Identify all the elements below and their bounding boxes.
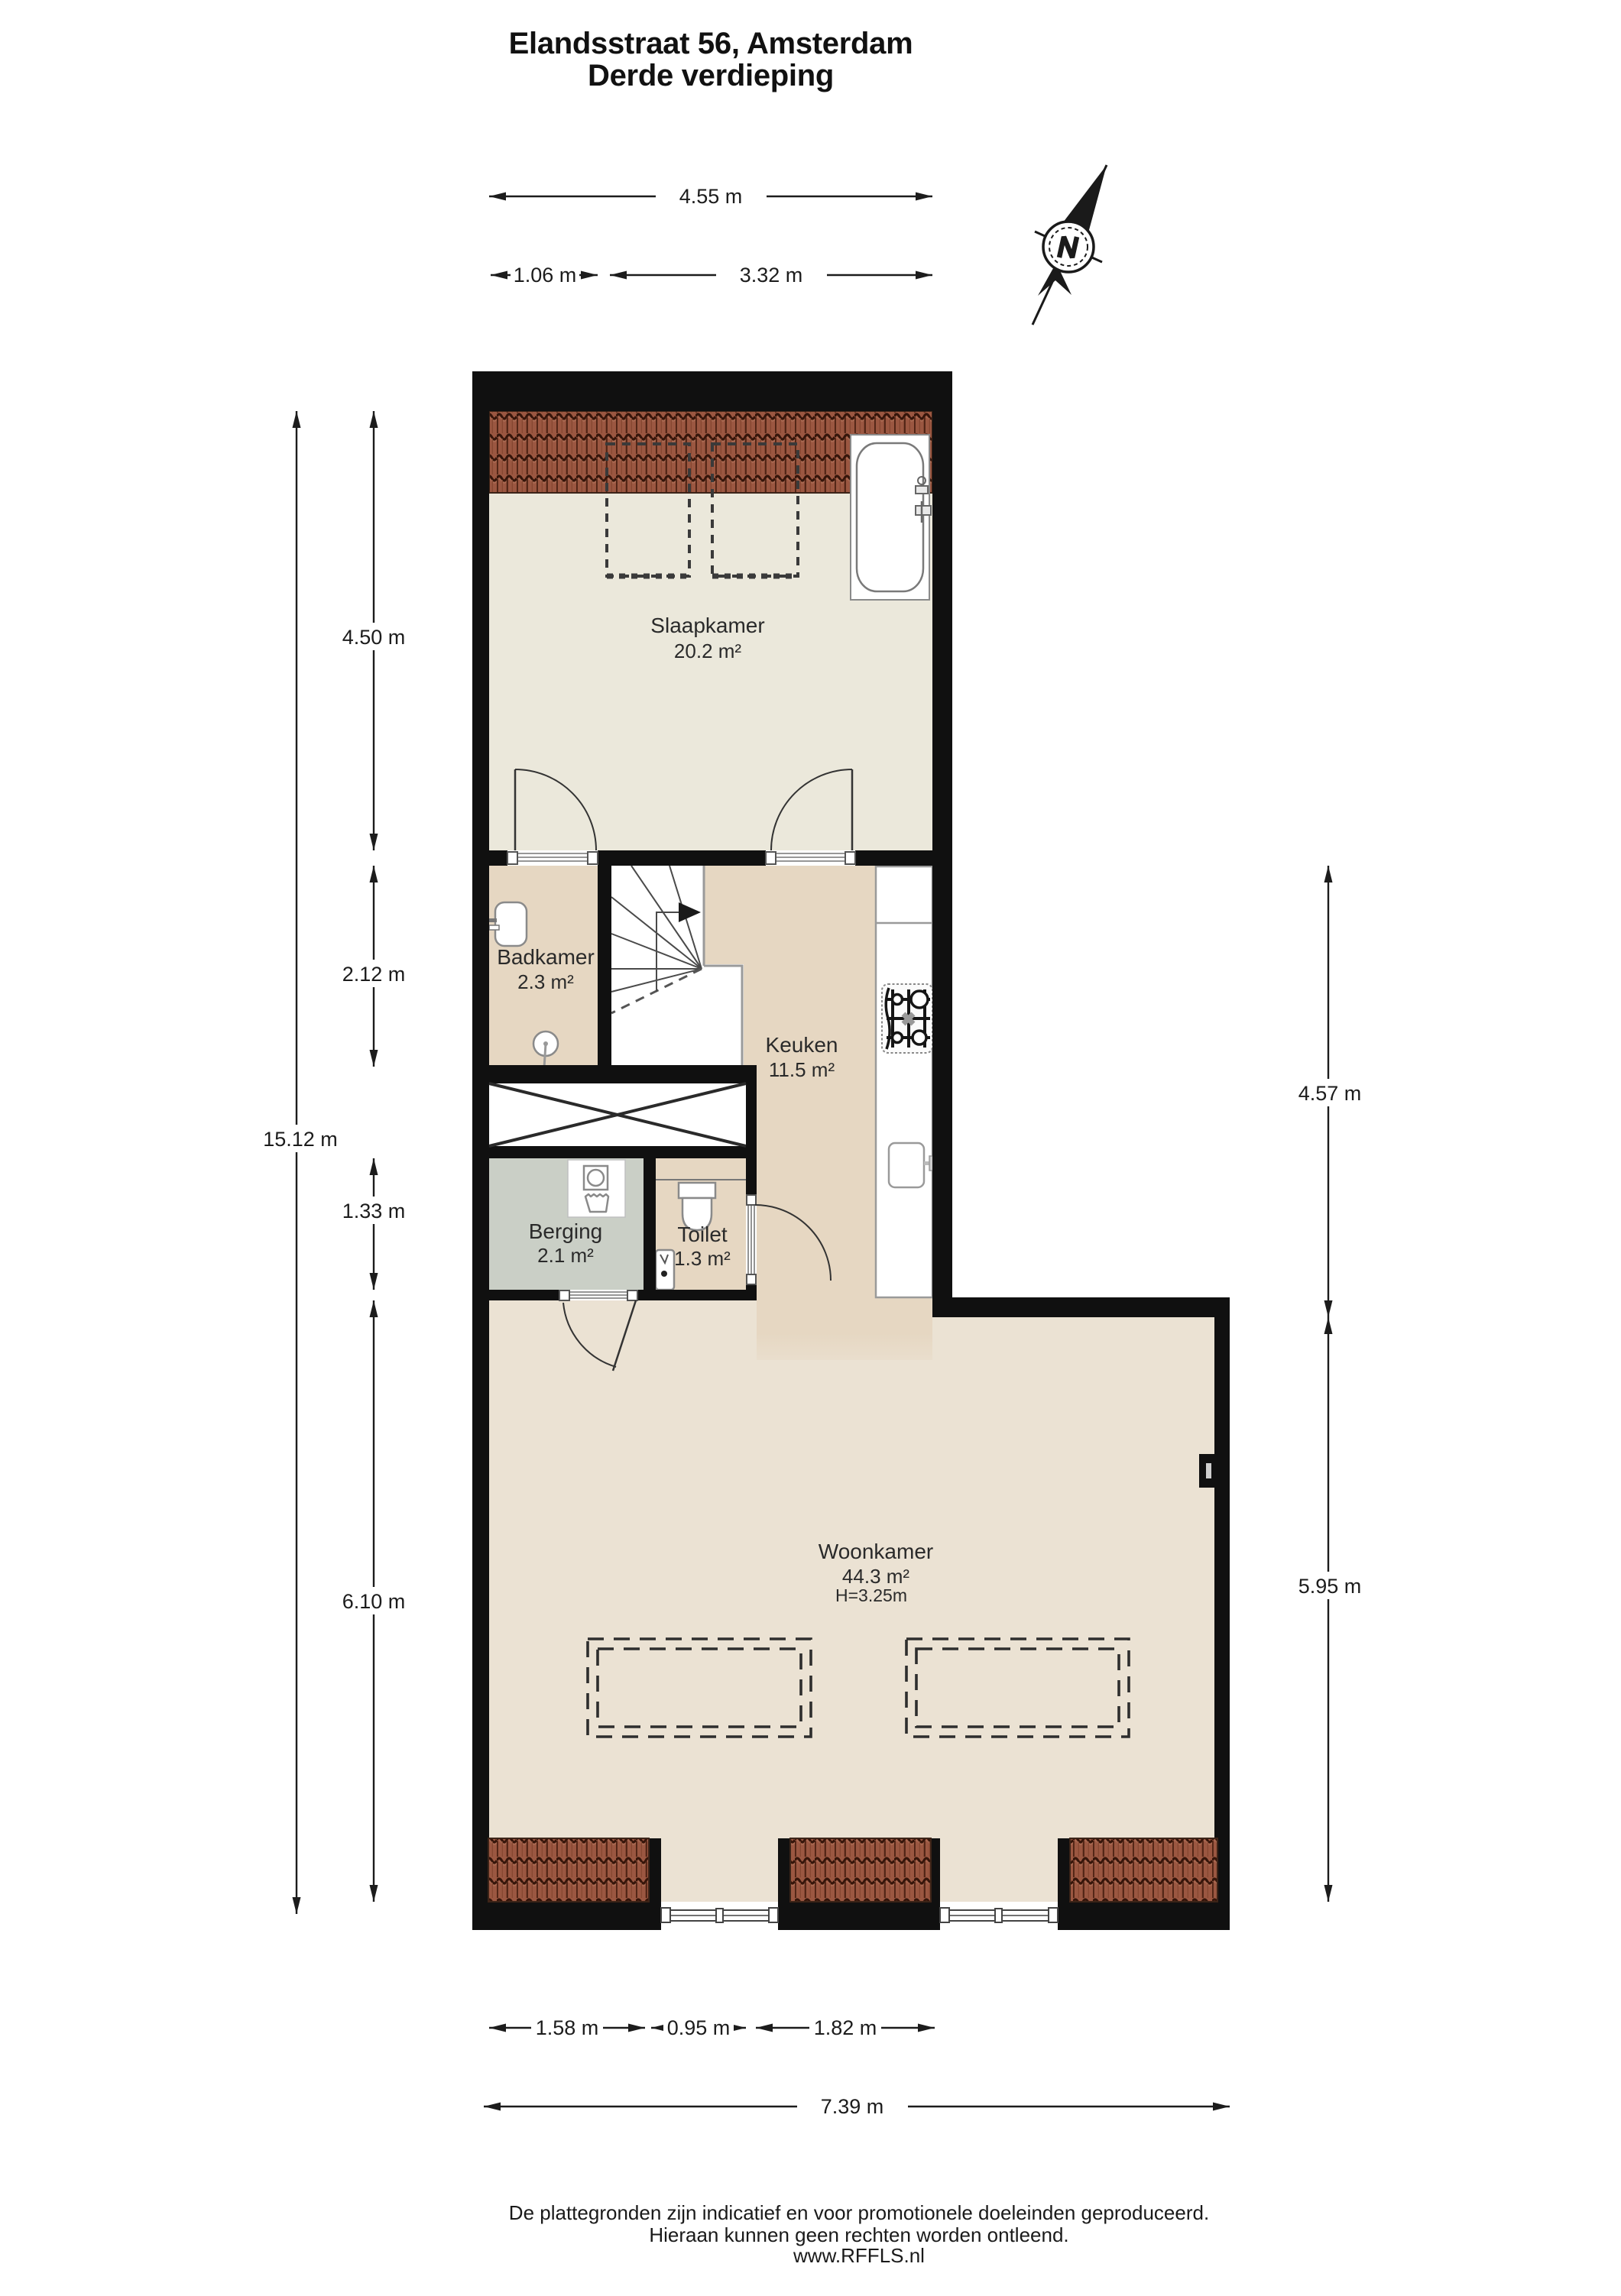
svg-text:6.10 m: 6.10 m [342,1590,406,1613]
svg-text:1.06 m: 1.06 m [514,264,577,287]
svg-text:2.1 m²: 2.1 m² [537,1244,594,1267]
svg-text:7.39 m: 7.39 m [821,2095,884,2118]
svg-text:1.3 m²: 1.3 m² [674,1247,731,1270]
svg-text:0.95 m: 0.95 m [667,2016,731,2039]
svg-text:5.95 m: 5.95 m [1298,1575,1362,1598]
svg-text:Berging: Berging [529,1219,603,1243]
svg-text:Toilet: Toilet [677,1222,728,1246]
svg-text:Badkamer: Badkamer [497,945,595,969]
svg-text:2.12 m: 2.12 m [342,963,406,986]
svg-text:3.32 m: 3.32 m [740,264,803,287]
svg-text:Keuken: Keuken [766,1033,838,1057]
svg-text:20.2 m²: 20.2 m² [674,640,741,662]
svg-text:Hieraan kunnen geen rechten wo: Hieraan kunnen geen rechten worden ontle… [649,2223,1068,2246]
svg-text:Elandsstraat 56, Amsterdam: Elandsstraat 56, Amsterdam [509,27,913,60]
svg-text:2.3 m²: 2.3 m² [517,970,574,993]
svg-text:4.50 m: 4.50 m [342,626,406,649]
svg-text:De plattegronden zijn indicati: De plattegronden zijn indicatief en voor… [509,2201,1209,2224]
svg-text:Derde verdieping: Derde verdieping [588,59,834,92]
svg-text:Slaapkamer: Slaapkamer [650,614,764,637]
svg-text:1.33 m: 1.33 m [342,1200,406,1222]
svg-text:www.RFFLS.nl: www.RFFLS.nl [793,2244,925,2267]
svg-text:11.5 m²: 11.5 m² [769,1058,835,1081]
svg-text:15.12 m: 15.12 m [263,1128,338,1151]
svg-text:4.57 m: 4.57 m [1298,1082,1362,1105]
svg-text:Woonkamer: Woonkamer [819,1540,933,1563]
svg-text:44.3 m²: 44.3 m² [842,1565,909,1588]
svg-text:H=3.25m: H=3.25m [835,1585,907,1605]
svg-text:1.58 m: 1.58 m [536,2016,599,2039]
svg-text:4.55 m: 4.55 m [679,185,743,208]
svg-text:1.82 m: 1.82 m [814,2016,877,2039]
